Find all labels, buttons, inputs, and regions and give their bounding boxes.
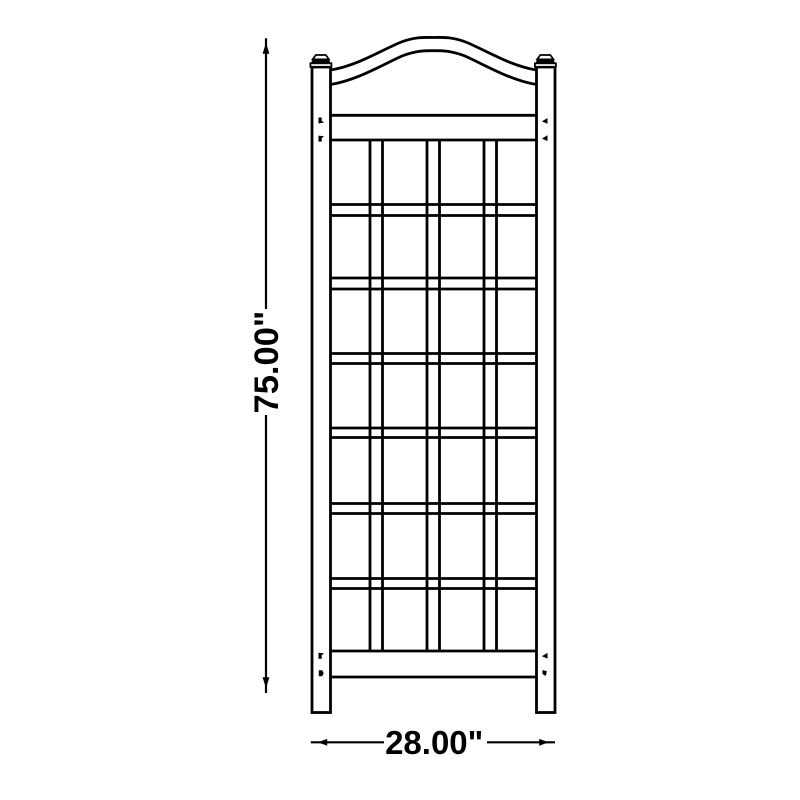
svg-text:28.00": 28.00"	[385, 724, 483, 761]
svg-text:75.00": 75.00"	[248, 311, 286, 414]
